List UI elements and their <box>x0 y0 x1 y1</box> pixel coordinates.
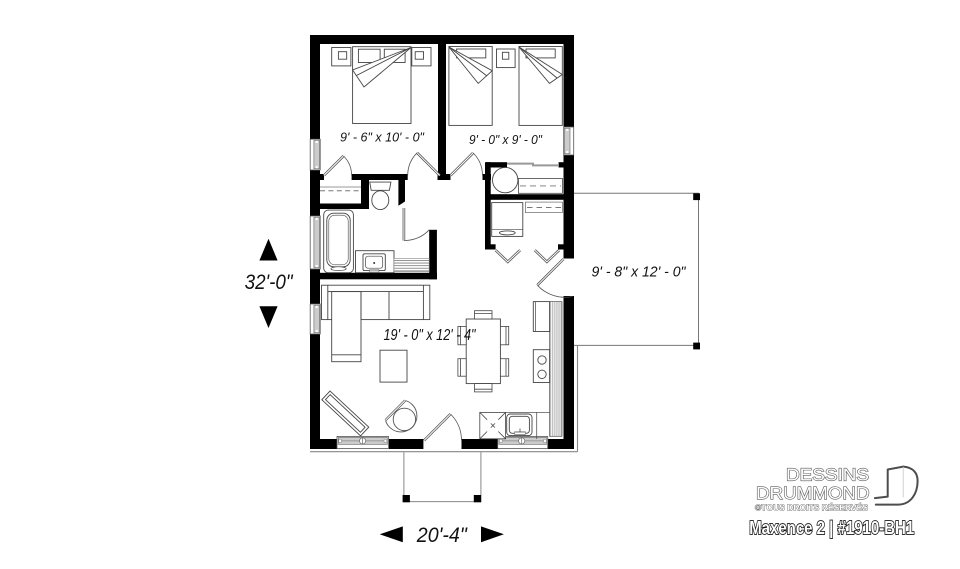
svg-text:9' - 6" x 10' - 0": 9' - 6" x 10' - 0" <box>340 131 425 145</box>
svg-text:20'-4": 20'-4" <box>416 524 468 547</box>
svg-text:©TOUS DROITS RÉSERVÉS: ©TOUS DROITS RÉSERVÉS <box>755 504 868 513</box>
svg-text:DESSINS: DESSINS <box>786 465 869 485</box>
svg-text:32'-0": 32'-0" <box>245 271 294 294</box>
svg-text:9' - 0" x 9' - 0": 9' - 0" x 9' - 0" <box>469 133 543 147</box>
svg-text:9' - 8" x 12' - 0": 9' - 8" x 12' - 0" <box>592 264 687 280</box>
svg-text:DRUMMOND: DRUMMOND <box>756 483 870 503</box>
svg-text:19' - 0" x 12' - 4": 19' - 0" x 12' - 4" <box>384 327 477 344</box>
svg-text:Maxence 2 | #1910-BH1: Maxence 2 | #1910-BH1 <box>749 517 914 538</box>
